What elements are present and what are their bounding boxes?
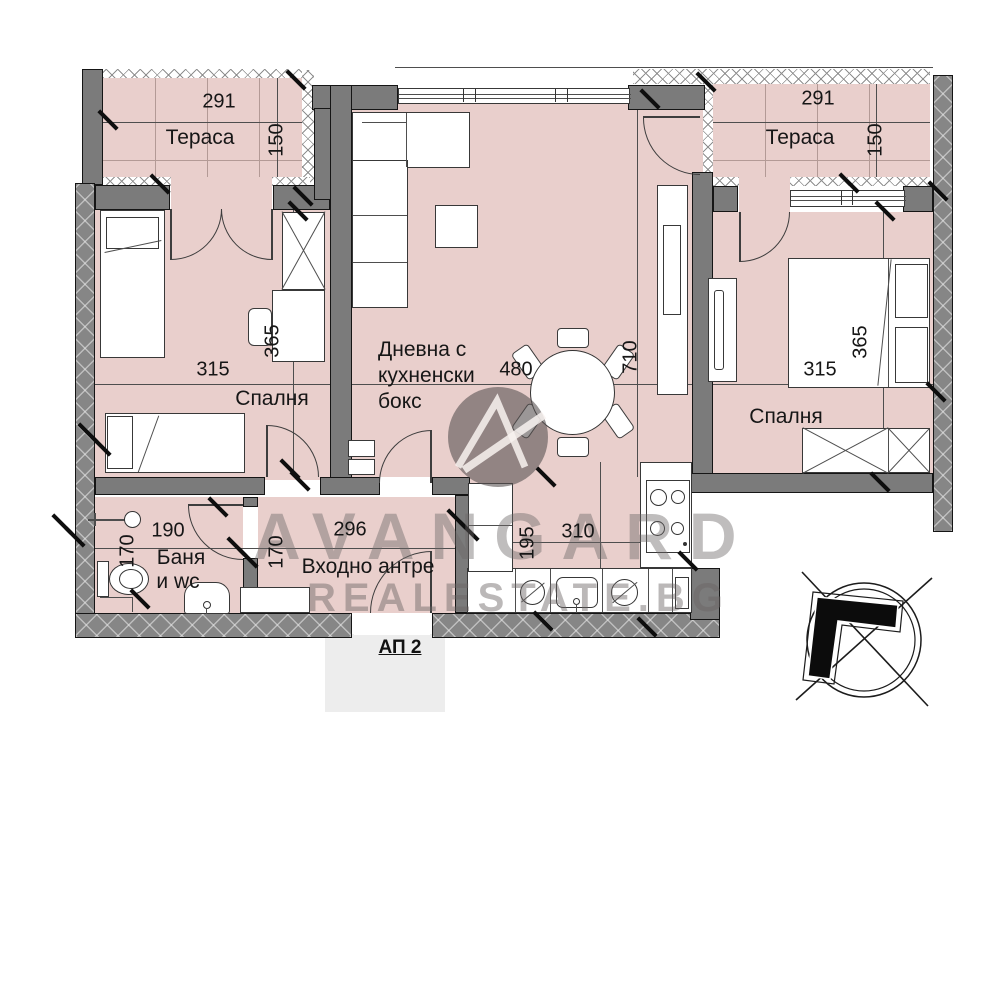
wall [903, 186, 933, 212]
wall [95, 477, 265, 495]
terrace-railing [633, 69, 930, 84]
shoe-cabinet [240, 587, 310, 613]
dim-terrace-left-depth: 150 [266, 123, 289, 156]
room-label-bedroom-right: Спалня [749, 405, 822, 429]
terrace-grid [103, 160, 302, 161]
pillow [106, 217, 159, 249]
shower-head-icon [124, 511, 141, 528]
sofa-cushion-line [406, 113, 407, 167]
living-label-line3: бокс [378, 389, 475, 415]
terrace-grid [259, 78, 260, 177]
dim-kitchen-depth: 195 [517, 526, 540, 559]
exterior-wall [75, 183, 95, 638]
dimension-line [637, 104, 638, 477]
dim-bathroom-width: 190 [151, 520, 184, 543]
room-label-bedroom-left: Спалня [235, 387, 308, 411]
wall [320, 477, 380, 495]
cabinet [348, 440, 375, 457]
dim-terrace-right-depth: 150 [865, 123, 888, 156]
room-label-bathroom-line2: и wc [156, 570, 199, 594]
toilet-bowl-inner [119, 569, 143, 589]
shelf-unit-door [663, 225, 681, 315]
shower-valve-icon [94, 513, 96, 526]
wardrobe-divider [888, 429, 889, 472]
wardrobe [802, 428, 930, 473]
wall [628, 85, 705, 110]
dim-hall-depth: 170 [266, 535, 289, 568]
dim-kitchen-width: 310 [561, 521, 594, 544]
chair [557, 437, 589, 457]
toilet-tank [97, 561, 109, 597]
tv-stand-door [714, 290, 724, 370]
sofa-cushion-line [353, 215, 407, 216]
shower-arm [97, 519, 125, 521]
window-living [398, 88, 630, 104]
doorway [171, 177, 272, 210]
faucet-stem [206, 608, 207, 614]
room-label-terrace-right: Тераса [766, 126, 835, 150]
dim-hall-width: 296 [333, 519, 366, 542]
dim-living-width: 480 [499, 359, 532, 382]
dim-bedroom-right-depth: 365 [850, 325, 873, 358]
wall [330, 85, 352, 495]
sofa-cushion-line [362, 122, 406, 123]
terrace-railing [103, 69, 302, 78]
exterior-wall [933, 75, 953, 532]
shower-tray-line [132, 597, 133, 612]
terrace-grid [155, 78, 156, 177]
watermark-site: REALESTATE.BG [307, 576, 730, 621]
dim-bedroom-left-depth: 365 [262, 324, 285, 357]
apartment-label: АП 2 [379, 637, 422, 659]
floor-plan: AVANGARD REALESTATE.BG Тераса 291 150 Те… [0, 0, 1000, 1000]
terrace-grid [713, 160, 930, 161]
room-label-living: Дневна с кухненски бокс [378, 337, 475, 415]
door-leaf [643, 116, 700, 118]
pillow [107, 416, 133, 469]
wall [82, 69, 103, 185]
door-leaf [739, 212, 741, 262]
shower-tray-line [100, 597, 133, 598]
coffee-table [435, 205, 478, 248]
window-bedroom-right [790, 190, 905, 207]
room-label-bathroom-line1: Баня [157, 546, 205, 570]
room-label-hall: Входно антре [302, 555, 435, 579]
living-label-line2: кухненски [378, 363, 475, 389]
wall [312, 85, 398, 110]
dim-bedroom-right-width: 315 [803, 359, 836, 382]
pillow [895, 327, 928, 383]
door-leaf [170, 209, 172, 260]
door-leaf [266, 425, 268, 477]
door-leaf [271, 209, 273, 260]
dim-living-depth: 710 [620, 340, 643, 373]
wall [690, 473, 933, 493]
sofa [352, 160, 408, 308]
room-label-terrace-left: Тераса [166, 126, 235, 150]
sofa-cushion-line [353, 262, 407, 263]
cabinet [348, 459, 375, 475]
chair [557, 328, 589, 348]
dim-bedroom-left-width: 315 [196, 359, 229, 382]
dim-bathroom-depth: 170 [117, 534, 140, 567]
wall [713, 186, 738, 212]
wall [95, 185, 170, 210]
dim-terrace-left-width: 291 [202, 91, 235, 114]
north-arrow-icon [782, 556, 952, 726]
dim-terrace-right-width: 291 [801, 88, 834, 111]
door-leaf [430, 430, 432, 483]
living-label-line1: Дневна с [378, 337, 475, 363]
dimension-line [713, 122, 930, 123]
pillow [895, 264, 928, 318]
doorway [739, 177, 790, 212]
